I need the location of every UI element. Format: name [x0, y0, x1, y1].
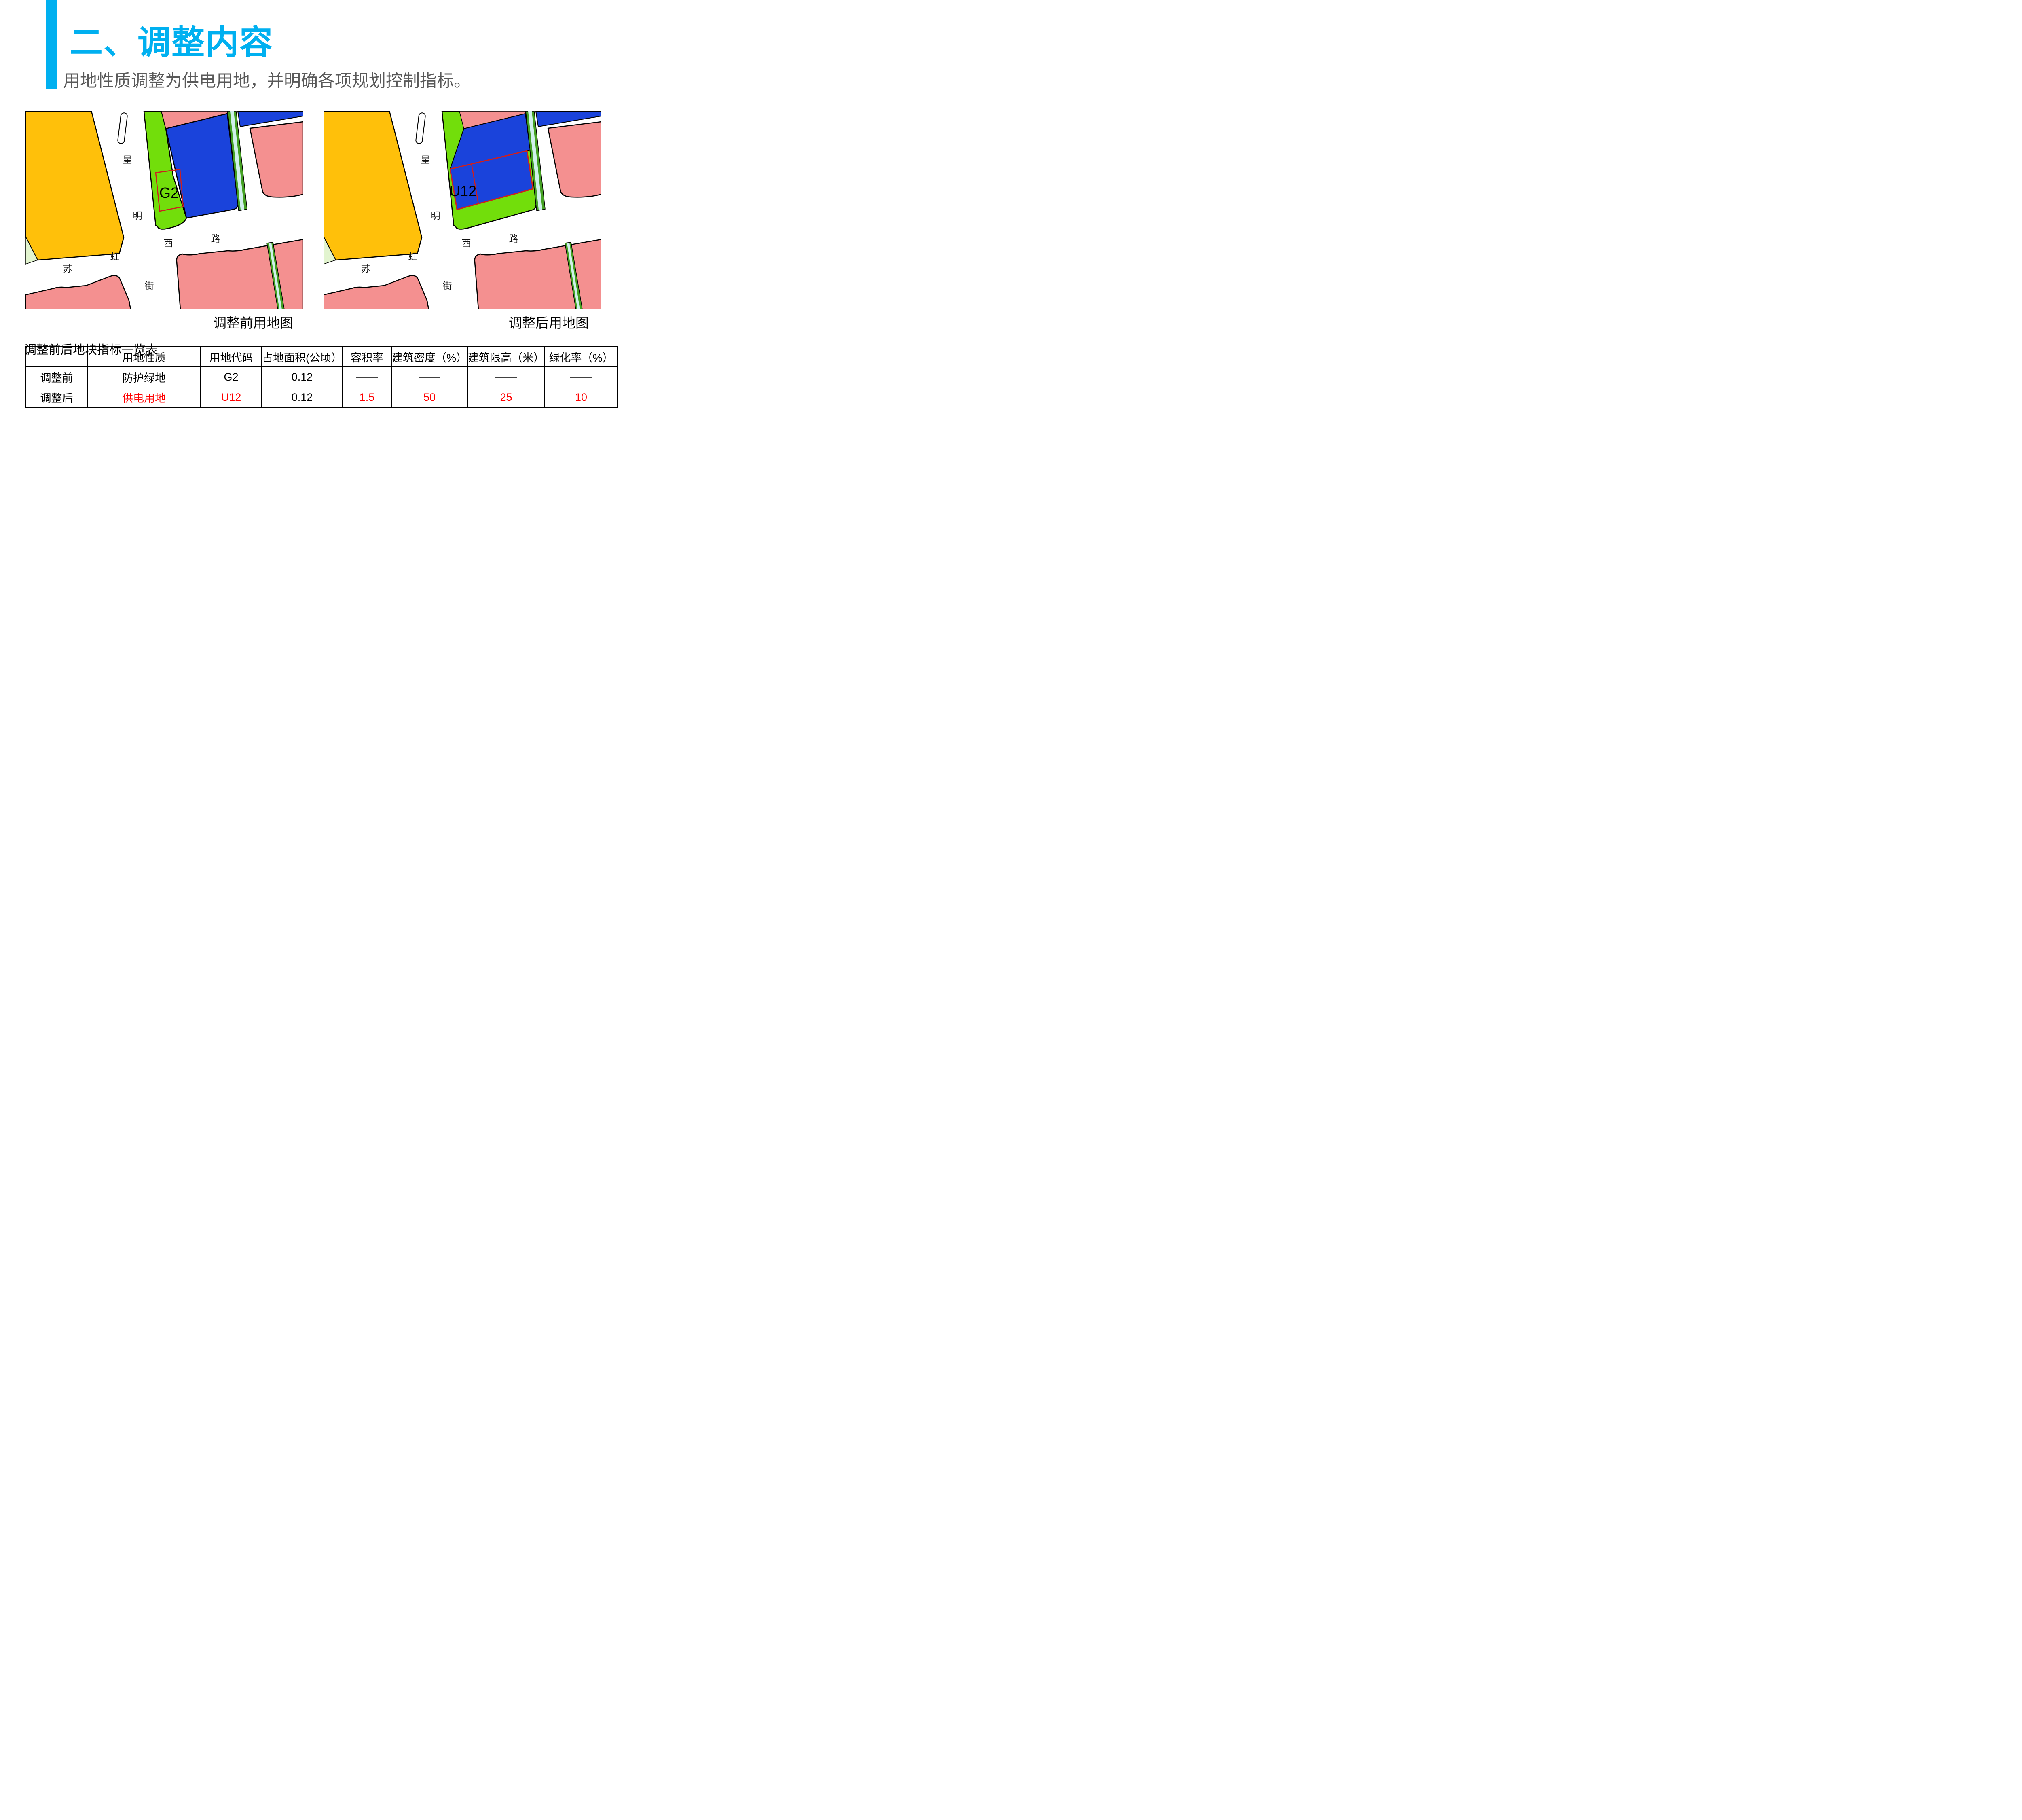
- street-label-su: 苏: [361, 263, 370, 274]
- cell-density: 50: [391, 387, 467, 407]
- title-accent-bar: [46, 0, 57, 89]
- street-label-su: 苏: [63, 263, 72, 274]
- cell-land-use: 防护绿地: [87, 367, 201, 387]
- map-caption-before: 调整前用地图: [213, 312, 293, 332]
- land-use-map-before: G2 星 明 西 路 苏 虹 街: [25, 111, 303, 309]
- row-label: 调整后: [26, 387, 87, 407]
- table-row-after: 调整后 供电用地 U12 0.12 1.5 50 25 10: [26, 387, 618, 407]
- cell-density: ——: [391, 367, 467, 387]
- cell-height-limit: ——: [467, 367, 545, 387]
- cell-area: 0.12: [262, 387, 343, 407]
- street-label-jie: 街: [443, 281, 452, 291]
- table-header-row: 用地性质 用地代码 占地面积(公顷） 容积率 建筑密度（%） 建筑限高（米） 绿…: [26, 347, 618, 367]
- header-cell-land-use: 用地性质: [87, 347, 201, 367]
- street-label-jie: 街: [145, 281, 154, 291]
- slide: { "slide": { "title": "二、调整内容", "subtitl…: [0, 0, 621, 466]
- header-cell-height-limit: 建筑限高（米）: [467, 347, 545, 367]
- cell-green-rate: ——: [545, 367, 618, 387]
- cell-green-rate: 10: [545, 387, 618, 407]
- map-caption-after: 调整后用地图: [509, 312, 589, 332]
- header-cell-land-code: 用地代码: [201, 347, 262, 367]
- street-label-lu: 路: [509, 233, 518, 244]
- cell-area: 0.12: [262, 367, 343, 387]
- row-label: 调整前: [26, 367, 87, 387]
- header-cell-area: 占地面积(公顷）: [262, 347, 343, 367]
- street-label-hong: 虹: [110, 251, 120, 262]
- land-use-map-after: U12 星 明 西 路 苏 虹 街: [324, 111, 601, 309]
- cell-far: ——: [343, 367, 391, 387]
- header-cell-far: 容积率: [343, 347, 391, 367]
- cell-land-code: G2: [201, 367, 262, 387]
- table-row-before: 调整前 防护绿地 G2 0.12 —— —— —— ——: [26, 367, 618, 387]
- header-cell-blank: [26, 347, 87, 367]
- page-subtitle: 用地性质调整为供电用地，并明确各项规划控制指标。: [63, 67, 471, 92]
- page-title: 二、调整内容: [70, 15, 273, 63]
- metrics-table: 用地性质 用地代码 占地面积(公顷） 容积率 建筑密度（%） 建筑限高（米） 绿…: [25, 346, 618, 408]
- header-cell-green-rate: 绿化率（%）: [545, 347, 618, 367]
- plot-label-g2: G2: [159, 184, 179, 201]
- street-label-hong: 虹: [408, 251, 418, 262]
- street-label-xing: 星: [123, 154, 132, 165]
- map-after-svg: U12 星 明 西 路 苏 虹 街: [324, 111, 601, 309]
- street-label-xing: 星: [421, 154, 430, 165]
- street-label-lu: 路: [211, 233, 220, 244]
- cell-height-limit: 25: [467, 387, 545, 407]
- street-label-ming: 明: [133, 210, 142, 221]
- cell-land-use: 供电用地: [87, 387, 201, 407]
- map-before-svg: G2 星 明 西 路 苏 虹 街: [25, 111, 303, 309]
- header-cell-density: 建筑密度（%）: [391, 347, 467, 367]
- street-label-xi: 西: [164, 238, 173, 248]
- plot-label-u12: U12: [450, 183, 476, 199]
- street-label-xi: 西: [462, 238, 471, 248]
- street-label-ming: 明: [431, 210, 440, 221]
- cell-land-code: U12: [201, 387, 262, 407]
- cell-far: 1.5: [343, 387, 391, 407]
